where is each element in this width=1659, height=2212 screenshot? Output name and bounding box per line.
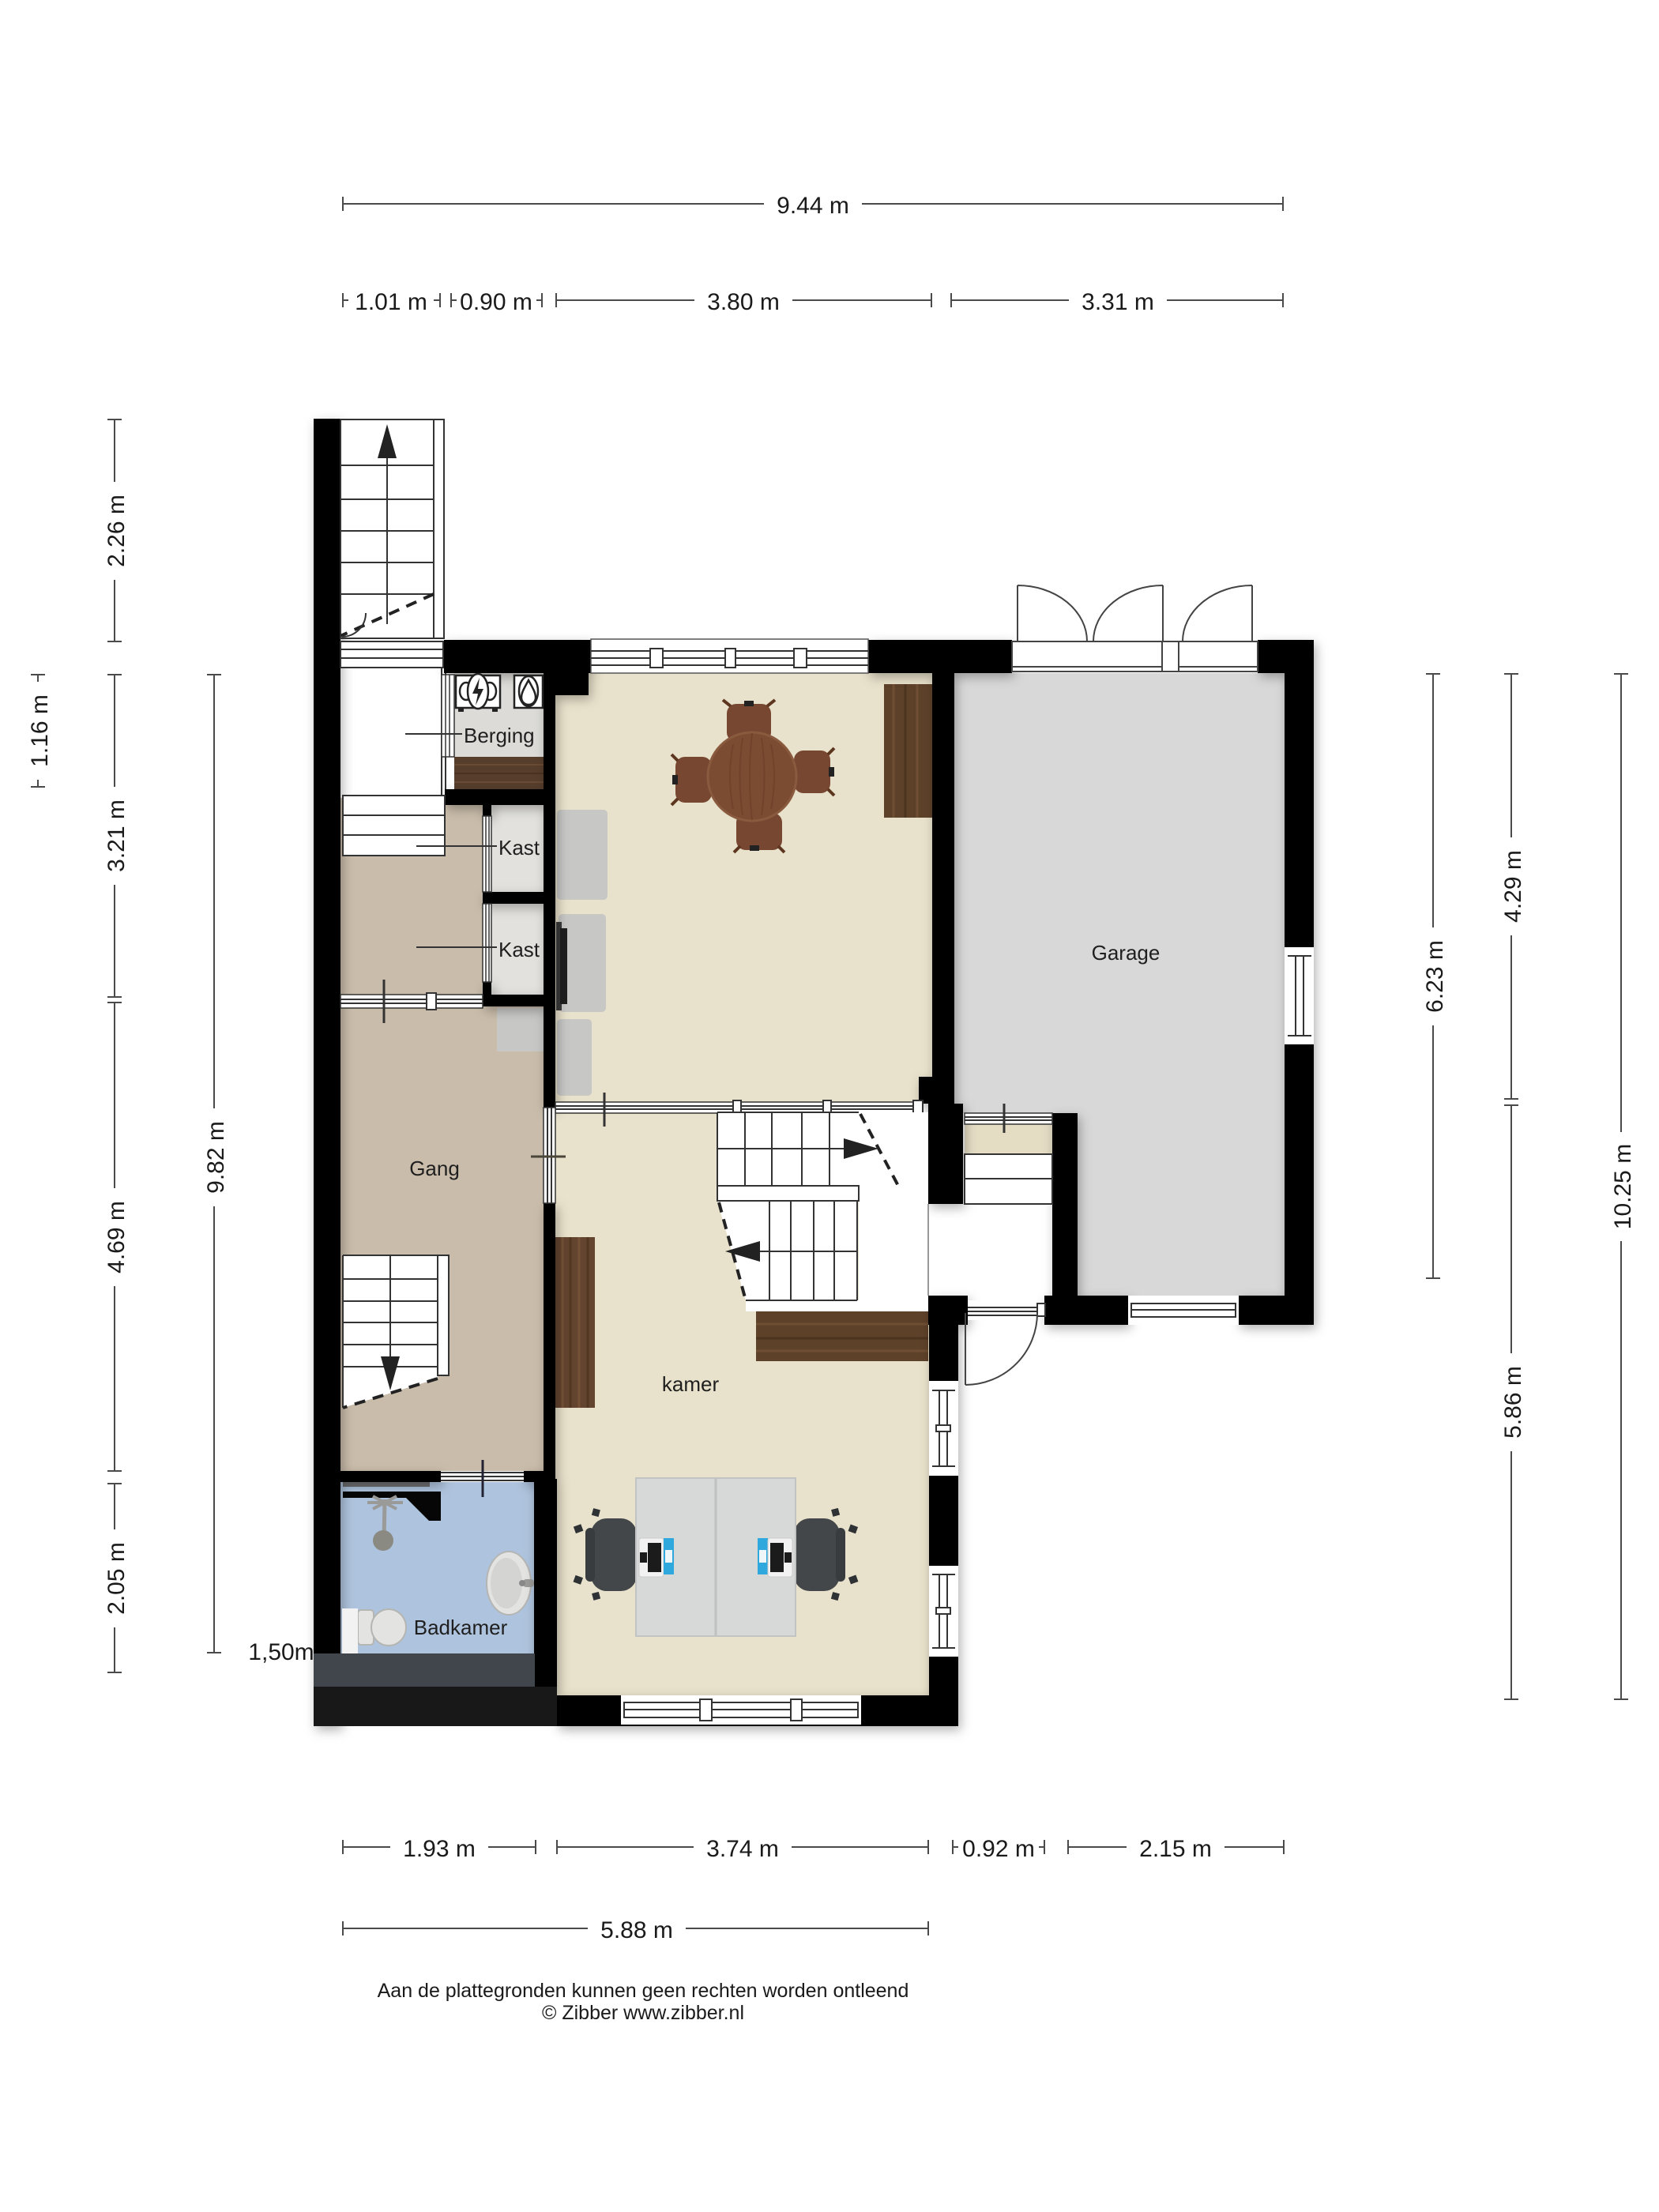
svg-text:4.29 m: 4.29 m (1500, 850, 1526, 923)
svg-text:3.80 m: 3.80 m (707, 289, 780, 315)
svg-text:1.16 m: 1.16 m (27, 694, 53, 767)
svg-text:3.21 m: 3.21 m (103, 799, 130, 872)
svg-text:© Zibber www.zibber.nl: © Zibber www.zibber.nl (542, 2002, 744, 2024)
svg-text:Kast: Kast (498, 836, 540, 860)
svg-text:1.93 m: 1.93 m (403, 1836, 476, 1862)
svg-text:2.26 m: 2.26 m (103, 495, 130, 567)
svg-text:kamer: kamer (662, 1372, 720, 1396)
svg-text:4.69 m: 4.69 m (103, 1201, 130, 1273)
svg-text:Garage: Garage (1092, 941, 1161, 965)
svg-text:2.15 m: 2.15 m (1139, 1836, 1212, 1862)
svg-text:0.90 m: 0.90 m (460, 289, 532, 315)
svg-text:Badkamer: Badkamer (414, 1616, 508, 1639)
svg-text:2.05 m: 2.05 m (103, 1542, 130, 1615)
svg-text:Aan de plattegronden kunnen ge: Aan de plattegronden kunnen geen rechten… (378, 1980, 909, 2002)
svg-text:3.31 m: 3.31 m (1082, 289, 1154, 315)
svg-text:1.01 m: 1.01 m (355, 289, 427, 315)
svg-text:0.92 m: 0.92 m (962, 1836, 1035, 1862)
svg-text:Gang: Gang (409, 1157, 460, 1180)
svg-text:10.25 m: 10.25 m (1610, 1144, 1636, 1229)
svg-text:5.86 m: 5.86 m (1500, 1366, 1526, 1439)
svg-text:Kast: Kast (498, 938, 540, 961)
svg-text:9.44 m: 9.44 m (777, 193, 849, 219)
svg-text:6.23 m: 6.23 m (1422, 940, 1448, 1013)
svg-text:Berging: Berging (464, 724, 535, 747)
svg-text:5.88 m: 5.88 m (600, 1917, 673, 1943)
svg-text:1,50m: 1,50m (248, 1639, 314, 1665)
svg-text:3.74 m: 3.74 m (706, 1836, 779, 1862)
svg-text:9.82 m: 9.82 m (203, 1121, 229, 1194)
